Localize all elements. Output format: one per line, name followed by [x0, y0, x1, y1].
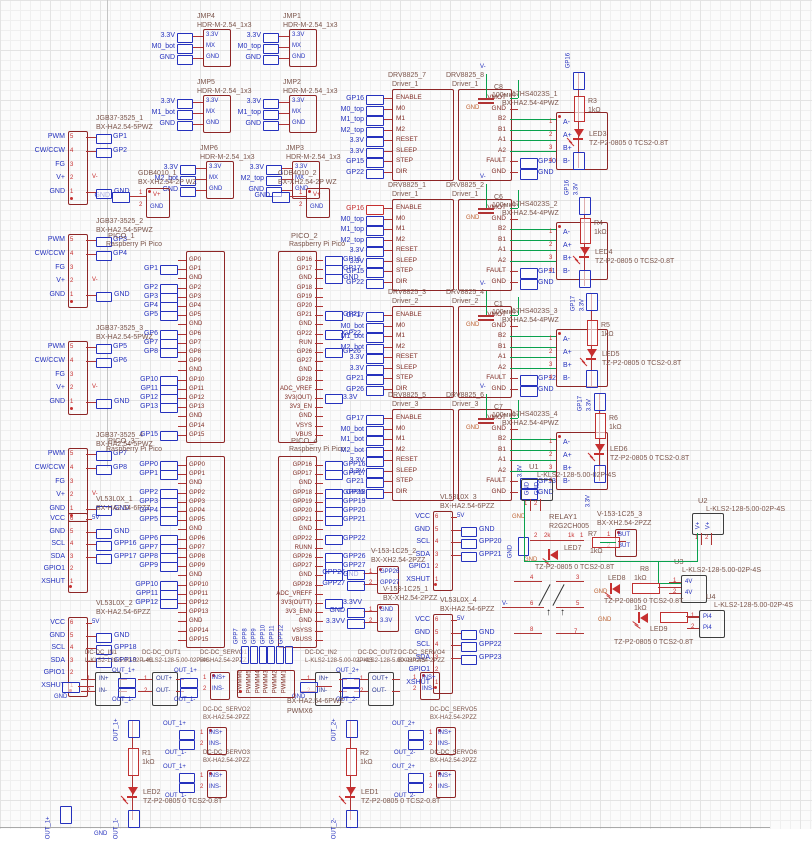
wire[interactable]: [315, 621, 323, 622]
net-flag[interactable]: [160, 431, 178, 441]
r2[interactable]: [346, 748, 357, 776]
wire[interactable]: [486, 74, 487, 98]
wire[interactable]: [86, 240, 96, 241]
wire[interactable]: [178, 594, 186, 595]
net-flag[interactable]: [263, 55, 279, 65]
net-flag[interactable]: [461, 642, 477, 652]
wire[interactable]: [196, 179, 206, 180]
wire[interactable]: [178, 612, 186, 613]
net-flag[interactable]: [586, 293, 598, 311]
net-flag[interactable]: [520, 375, 538, 386]
wire[interactable]: [315, 260, 323, 261]
wire[interactable]: [478, 319, 494, 321]
wire[interactable]: [301, 679, 315, 680]
net-flag[interactable]: [179, 730, 195, 740]
wire[interactable]: [384, 315, 392, 316]
r9[interactable]: [660, 612, 688, 623]
net-flag[interactable]: [342, 678, 360, 688]
r4[interactable]: [580, 218, 591, 244]
wire[interactable]: [178, 520, 186, 521]
net-flag[interactable]: [180, 165, 196, 175]
wire[interactable]: [282, 168, 292, 169]
wire[interactable]: [178, 435, 186, 436]
wire[interactable]: [315, 278, 323, 279]
wire[interactable]: [451, 530, 461, 531]
wire[interactable]: [86, 532, 96, 533]
net-flag[interactable]: [96, 529, 112, 539]
wire[interactable]: [178, 548, 186, 549]
wire[interactable]: [384, 347, 392, 348]
wire[interactable]: [478, 212, 494, 214]
wire[interactable]: [315, 297, 323, 298]
net-flag[interactable]: [96, 465, 112, 475]
wire[interactable]: [315, 474, 323, 475]
net-flag[interactable]: [520, 169, 538, 180]
net-flag[interactable]: [160, 311, 178, 321]
net-flag[interactable]: [461, 655, 477, 665]
wire[interactable]: [384, 161, 392, 162]
net-flag[interactable]: [366, 216, 384, 226]
wire[interactable]: [510, 140, 556, 141]
net-flag[interactable]: [325, 274, 343, 284]
net-flag[interactable]: [96, 554, 112, 564]
wire[interactable]: [384, 357, 392, 358]
wire[interactable]: [384, 250, 392, 251]
wire[interactable]: [510, 347, 556, 348]
wire[interactable]: [669, 593, 681, 594]
wire[interactable]: [178, 389, 186, 390]
wire[interactable]: [178, 334, 186, 335]
wire[interactable]: [178, 306, 186, 307]
wire[interactable]: [315, 288, 323, 289]
net-flag[interactable]: [366, 169, 384, 179]
net-flag[interactable]: [179, 740, 195, 750]
net-flag[interactable]: [250, 646, 258, 664]
net-flag[interactable]: [177, 55, 193, 65]
net-flag[interactable]: [263, 33, 279, 43]
wire[interactable]: [315, 548, 323, 549]
wire[interactable]: [279, 124, 289, 125]
net-flag[interactable]: [96, 134, 112, 144]
net-flag[interactable]: [520, 158, 538, 169]
net-flag[interactable]: [366, 354, 384, 364]
wire[interactable]: [86, 192, 96, 193]
wire[interactable]: [510, 326, 518, 327]
wire[interactable]: [478, 422, 494, 424]
wire[interactable]: [451, 645, 461, 646]
wire[interactable]: [600, 542, 616, 543]
wire[interactable]: [178, 407, 186, 408]
wire[interactable]: [510, 492, 518, 493]
wire[interactable]: [86, 295, 96, 296]
wire[interactable]: [384, 282, 392, 283]
wire[interactable]: [687, 628, 699, 629]
wire[interactable]: [178, 352, 186, 353]
wire[interactable]: [384, 240, 392, 241]
wire[interactable]: [315, 603, 323, 604]
net-flag[interactable]: [128, 810, 140, 828]
wire[interactable]: [178, 260, 186, 261]
wire[interactable]: [315, 426, 323, 427]
wire[interactable]: [178, 380, 186, 381]
net-flag[interactable]: [272, 192, 290, 203]
wire[interactable]: [178, 529, 186, 530]
net-flag[interactable]: [594, 393, 606, 411]
net-flag[interactable]: [366, 312, 384, 322]
wire[interactable]: [315, 539, 323, 540]
wire[interactable]: [384, 418, 392, 419]
net-flag[interactable]: [366, 279, 384, 289]
net-flag[interactable]: [179, 783, 195, 793]
wire[interactable]: [530, 499, 531, 511]
net-flag[interactable]: [347, 608, 365, 618]
net-flag[interactable]: [96, 251, 112, 261]
wire[interactable]: [178, 575, 186, 576]
net-flag[interactable]: [366, 137, 384, 147]
net-flag[interactable]: [179, 773, 195, 783]
wire[interactable]: [178, 631, 186, 632]
wire[interactable]: [315, 315, 323, 316]
wire[interactable]: [510, 282, 518, 283]
led2-icon[interactable]: [126, 786, 142, 804]
wire[interactable]: [530, 540, 584, 541]
wire[interactable]: [178, 493, 186, 494]
wire[interactable]: [392, 691, 400, 692]
wire[interactable]: [384, 368, 392, 369]
wire[interactable]: [384, 109, 392, 110]
wire[interactable]: [178, 621, 186, 622]
wire[interactable]: [279, 102, 289, 103]
wire[interactable]: [658, 587, 681, 588]
net-flag[interactable]: [461, 552, 477, 562]
wire[interactable]: [384, 378, 392, 379]
net-flag[interactable]: [325, 394, 343, 404]
wire[interactable]: [363, 573, 377, 574]
net-flag[interactable]: [366, 436, 384, 446]
wire[interactable]: [178, 539, 186, 540]
net-flag[interactable]: [346, 810, 358, 828]
net-flag[interactable]: [461, 527, 477, 537]
wire[interactable]: [196, 168, 206, 169]
net-flag[interactable]: [96, 541, 112, 551]
wire[interactable]: [86, 544, 96, 545]
wire[interactable]: [315, 465, 323, 466]
wire[interactable]: [510, 357, 556, 358]
wire[interactable]: [178, 483, 186, 484]
wire[interactable]: [178, 297, 186, 298]
wire[interactable]: [86, 151, 96, 152]
wire[interactable]: [556, 581, 584, 582]
wire[interactable]: [384, 208, 392, 209]
wire[interactable]: [384, 439, 392, 440]
wire[interactable]: [384, 140, 392, 141]
net-flag[interactable]: [366, 344, 384, 354]
net-flag[interactable]: [408, 730, 424, 740]
net-flag[interactable]: [160, 348, 178, 358]
wire[interactable]: [697, 533, 698, 561]
wire[interactable]: [315, 502, 323, 503]
wire[interactable]: [279, 47, 289, 48]
net-flag[interactable]: [366, 415, 384, 425]
net-flag[interactable]: [62, 682, 80, 693]
wire[interactable]: [510, 161, 518, 162]
wire[interactable]: [315, 380, 323, 381]
wire[interactable]: [315, 612, 323, 613]
wire[interactable]: [178, 315, 186, 316]
wire[interactable]: [486, 184, 487, 208]
wire[interactable]: [178, 585, 186, 586]
wire[interactable]: [315, 324, 323, 325]
net-flag[interactable]: [366, 95, 384, 105]
net-flag[interactable]: [461, 630, 477, 640]
wire[interactable]: [86, 509, 96, 510]
wire[interactable]: [315, 269, 323, 270]
net-flag[interactable]: [160, 516, 178, 526]
r8[interactable]: [632, 583, 660, 594]
wire[interactable]: [81, 691, 95, 692]
net-flag[interactable]: [180, 187, 196, 197]
net-flag[interactable]: [366, 247, 384, 257]
net-flag[interactable]: [366, 365, 384, 375]
net-flag[interactable]: [259, 646, 267, 664]
wire[interactable]: [701, 533, 702, 545]
led9-icon[interactable]: [636, 613, 654, 627]
wire[interactable]: [315, 306, 323, 307]
wire[interactable]: [86, 468, 96, 469]
led5-icon[interactable]: [585, 348, 601, 366]
net-flag[interactable]: [366, 478, 384, 488]
wire[interactable]: [384, 119, 392, 120]
wire[interactable]: [193, 124, 203, 125]
wire[interactable]: [86, 347, 96, 348]
wire[interactable]: [384, 481, 392, 482]
wire[interactable]: [178, 324, 186, 325]
wire[interactable]: [315, 594, 323, 595]
net-flag[interactable]: [263, 44, 279, 54]
net-flag[interactable]: [160, 403, 178, 413]
wire[interactable]: [315, 631, 323, 632]
wire[interactable]: [178, 288, 186, 289]
net-flag[interactable]: [366, 268, 384, 278]
net-flag[interactable]: [325, 516, 343, 526]
wire[interactable]: [486, 394, 487, 418]
wire[interactable]: [86, 557, 96, 558]
net-flag[interactable]: [96, 292, 112, 302]
net-flag[interactable]: [96, 633, 112, 643]
wire[interactable]: [193, 36, 203, 37]
wire[interactable]: [363, 622, 377, 623]
r6[interactable]: [595, 413, 606, 439]
wire[interactable]: [502, 607, 544, 608]
net-flag[interactable]: [160, 562, 178, 572]
wire[interactable]: [538, 584, 550, 606]
wire[interactable]: [315, 566, 323, 567]
net-flag[interactable]: [96, 358, 112, 368]
net-flag[interactable]: [366, 323, 384, 333]
wire[interactable]: [658, 583, 681, 584]
wire[interactable]: [510, 481, 518, 482]
wire[interactable]: [81, 679, 95, 680]
net-flag[interactable]: [325, 311, 343, 321]
wire[interactable]: [193, 47, 203, 48]
net-flag[interactable]: [128, 720, 140, 738]
led3-icon[interactable]: [572, 128, 588, 146]
net-flag[interactable]: [160, 265, 178, 275]
wire[interactable]: [315, 407, 323, 408]
net-flag[interactable]: [520, 386, 538, 397]
wire[interactable]: [178, 511, 186, 512]
net-flag[interactable]: [366, 127, 384, 137]
wire[interactable]: [451, 542, 461, 543]
net-flag[interactable]: [366, 333, 384, 343]
wire[interactable]: [279, 113, 289, 114]
net-flag[interactable]: [366, 258, 384, 268]
wire[interactable]: [510, 219, 518, 220]
wire[interactable]: [178, 361, 186, 362]
net-flag[interactable]: [346, 720, 358, 738]
net-flag[interactable]: [177, 99, 193, 109]
net-flag[interactable]: [60, 806, 72, 824]
net-flag[interactable]: [366, 106, 384, 116]
wire[interactable]: [363, 611, 377, 612]
wire[interactable]: [130, 196, 146, 197]
wire[interactable]: [384, 98, 392, 99]
wire[interactable]: [138, 679, 152, 680]
wire[interactable]: [524, 561, 698, 562]
net-flag[interactable]: [325, 535, 343, 545]
wire[interactable]: [711, 533, 712, 545]
wire[interactable]: [315, 483, 323, 484]
wire[interactable]: [178, 640, 186, 641]
net-flag[interactable]: [366, 457, 384, 467]
wire[interactable]: [178, 370, 186, 371]
wire[interactable]: [658, 561, 659, 584]
wire[interactable]: [556, 633, 584, 634]
wire[interactable]: [540, 499, 541, 511]
net-flag[interactable]: [96, 189, 112, 199]
wire[interactable]: [363, 584, 377, 585]
wire[interactable]: [510, 250, 556, 251]
wire[interactable]: [392, 679, 400, 680]
wire[interactable]: [78, 686, 94, 687]
wire[interactable]: [478, 102, 494, 104]
wire[interactable]: [178, 269, 186, 270]
net-flag[interactable]: [366, 375, 384, 385]
net-flag[interactable]: [408, 783, 424, 793]
wire[interactable]: [510, 172, 518, 173]
wire[interactable]: [451, 620, 457, 621]
led8-icon[interactable]: [608, 584, 626, 598]
net-flag[interactable]: [263, 99, 279, 109]
wire[interactable]: [178, 278, 186, 279]
wire[interactable]: [510, 450, 556, 451]
wire[interactable]: [315, 520, 323, 521]
wire[interactable]: [315, 370, 323, 371]
net-flag[interactable]: [347, 581, 365, 591]
led4-icon[interactable]: [578, 246, 594, 264]
wire[interactable]: [138, 691, 152, 692]
net-flag[interactable]: [267, 646, 275, 664]
wire[interactable]: [384, 460, 392, 461]
led1-icon[interactable]: [344, 786, 360, 804]
net-flag[interactable]: [96, 148, 112, 158]
wire[interactable]: [178, 465, 186, 466]
net-flag[interactable]: [366, 158, 384, 168]
net-flag[interactable]: [579, 197, 591, 215]
r5[interactable]: [587, 320, 598, 346]
net-flag[interactable]: [177, 121, 193, 131]
wire[interactable]: [178, 426, 186, 427]
wire[interactable]: [384, 492, 392, 493]
wire[interactable]: [290, 196, 306, 197]
wire[interactable]: [451, 555, 461, 556]
wire[interactable]: [86, 636, 96, 637]
wire[interactable]: [315, 398, 323, 399]
wire[interactable]: [384, 229, 392, 230]
net-flag[interactable]: [408, 740, 424, 750]
net-flag[interactable]: [285, 646, 293, 664]
wire[interactable]: [524, 501, 525, 561]
net-flag[interactable]: [96, 344, 112, 354]
wire[interactable]: [193, 102, 203, 103]
net-flag[interactable]: [586, 370, 598, 388]
wire[interactable]: [315, 343, 323, 344]
net-flag[interactable]: [263, 110, 279, 120]
wire[interactable]: [86, 254, 96, 255]
wire[interactable]: [315, 389, 323, 390]
wire[interactable]: [178, 398, 186, 399]
wire[interactable]: [315, 352, 323, 353]
wire[interactable]: [86, 361, 96, 362]
wire[interactable]: [514, 581, 542, 582]
net-flag[interactable]: [177, 33, 193, 43]
wire[interactable]: [315, 511, 323, 512]
net-flag[interactable]: [347, 570, 365, 580]
wire[interactable]: [510, 460, 556, 461]
wire[interactable]: [178, 474, 186, 475]
wire[interactable]: [510, 130, 556, 131]
net-flag[interactable]: [520, 279, 538, 290]
wire[interactable]: [510, 429, 518, 430]
wire[interactable]: [384, 450, 392, 451]
wire[interactable]: [315, 493, 323, 494]
net-flag[interactable]: [408, 773, 424, 783]
net-flag[interactable]: [573, 72, 585, 90]
wire[interactable]: [618, 541, 626, 542]
wire[interactable]: [315, 334, 323, 335]
net-flag[interactable]: [366, 116, 384, 126]
wire[interactable]: [687, 617, 699, 618]
net-flag[interactable]: [461, 539, 477, 549]
wire[interactable]: [384, 471, 392, 472]
wire[interactable]: [193, 113, 203, 114]
net-flag[interactable]: [366, 489, 384, 499]
wire[interactable]: [510, 240, 556, 241]
wire[interactable]: [384, 151, 392, 152]
wire[interactable]: [451, 517, 457, 518]
net-flag[interactable]: [241, 646, 249, 664]
net-flag[interactable]: [573, 152, 585, 170]
wire[interactable]: [315, 557, 323, 558]
wire[interactable]: [315, 361, 323, 362]
net-flag[interactable]: [263, 121, 279, 131]
wire[interactable]: [86, 623, 92, 624]
wire[interactable]: [510, 271, 518, 272]
wire[interactable]: [178, 502, 186, 503]
wire[interactable]: [193, 58, 203, 59]
wire[interactable]: [279, 36, 289, 37]
wire[interactable]: [178, 557, 186, 558]
